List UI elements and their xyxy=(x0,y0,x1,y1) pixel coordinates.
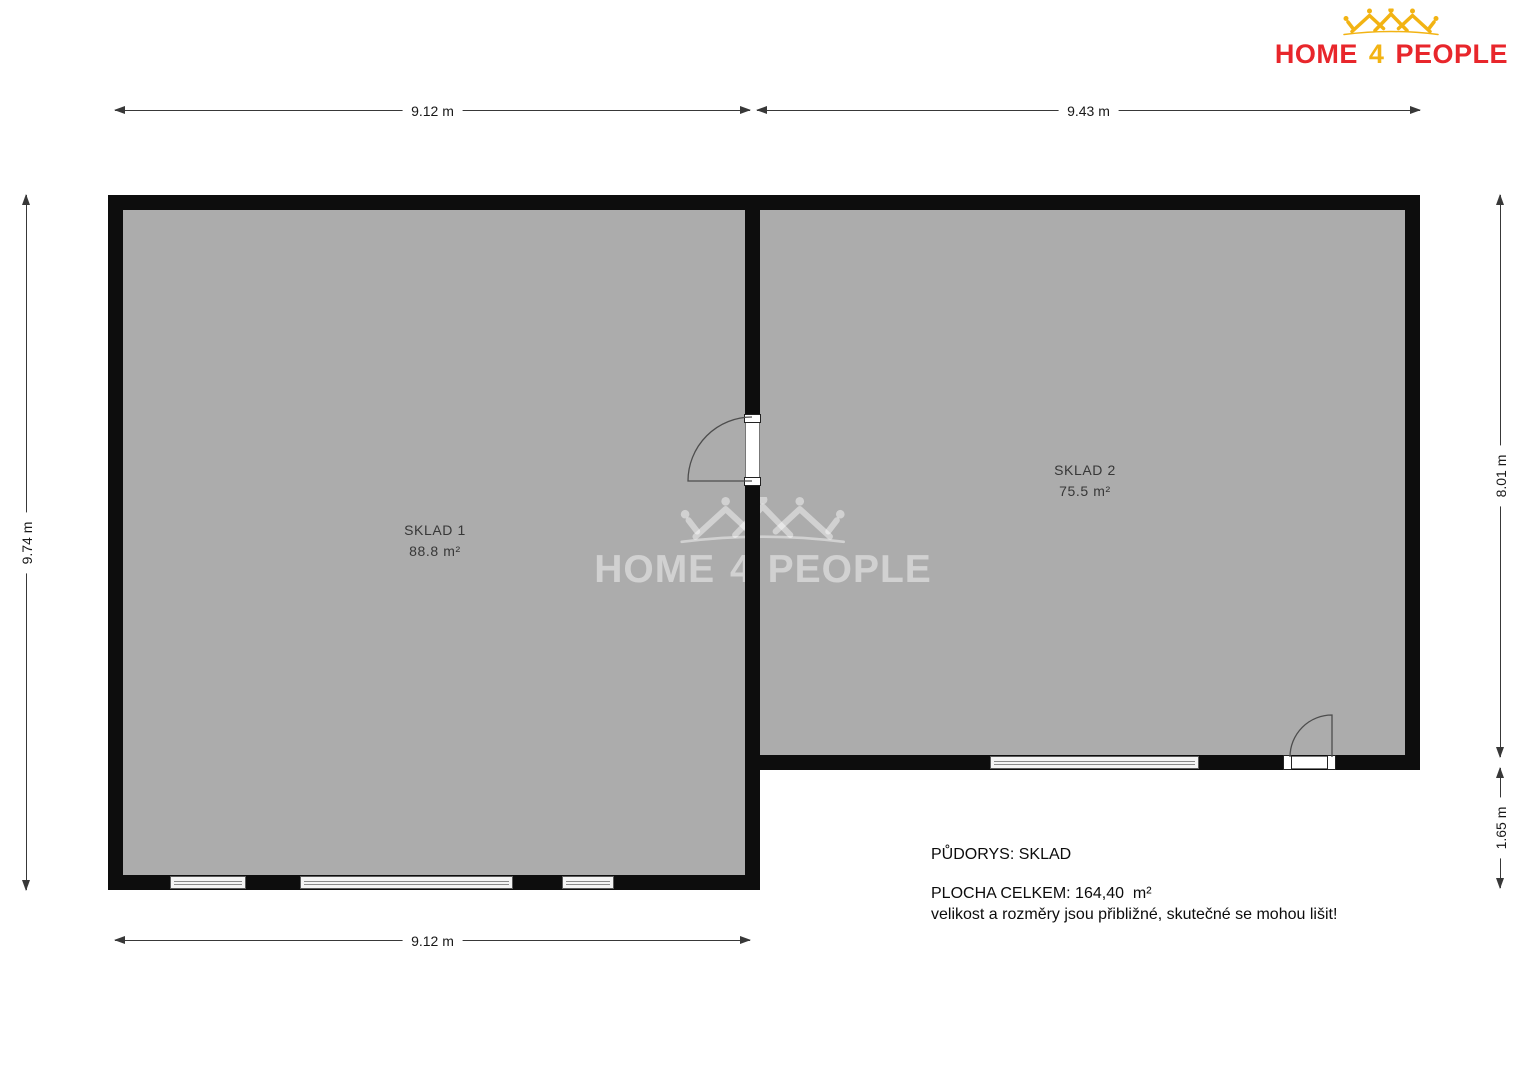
logo-word-people: PEOPLE xyxy=(1395,39,1508,69)
arrow-right-icon xyxy=(740,106,751,114)
arrow-left-icon xyxy=(756,106,767,114)
arrow-left-icon xyxy=(114,106,125,114)
disclaimer: velikost a rozměry jsou přibližné, skute… xyxy=(931,906,1337,924)
dimension-value: 9.12 m xyxy=(402,933,463,949)
arrow-down-icon xyxy=(1496,747,1504,758)
arrow-right-icon xyxy=(740,936,751,944)
room-area: 75.5 m² xyxy=(1005,481,1165,502)
dimension-right-lower: 1.65 m xyxy=(1500,768,1501,888)
logo-wordmark: HOME 4 PEOPLE xyxy=(1275,41,1508,68)
dimension-top-left: 9.12 m xyxy=(115,110,750,111)
dimension-value: 9.43 m xyxy=(1058,103,1119,119)
dimension-left: 9.74 m xyxy=(26,195,27,890)
plan-notes: PŮDORYS: SKLAD PLOCHA CELKEM: 164,40 m² … xyxy=(931,846,1337,924)
arrow-right-icon xyxy=(1410,106,1421,114)
total-area: PLOCHA CELKEM: 164,40 m² xyxy=(931,885,1337,903)
room-label-sklad1: SKLAD 1 88.8 m² xyxy=(355,520,515,562)
room-name: SKLAD 1 xyxy=(355,520,515,541)
home4people-logo: HOME 4 PEOPLE xyxy=(1275,8,1508,68)
houses-people-icon xyxy=(1341,8,1441,38)
dimension-value: 8.01 m xyxy=(1493,446,1509,507)
arrow-up-icon xyxy=(1496,194,1504,205)
logo-word-four: 4 xyxy=(1366,39,1388,69)
room-label-sklad2: SKLAD 2 75.5 m² xyxy=(1005,460,1165,502)
dimension-right-upper: 8.01 m xyxy=(1500,195,1501,757)
door-swing-sklad2 xyxy=(1290,715,1332,757)
plan-title: PŮDORYS: SKLAD xyxy=(931,846,1337,864)
door-swing-middle xyxy=(688,417,752,481)
room-name: SKLAD 2 xyxy=(1005,460,1165,481)
arrow-down-icon xyxy=(22,880,30,891)
floorplan-page: HOME 4 PEOPLE HOME 4 PEOPLE SKLAD 1 88.8… xyxy=(0,0,1526,1080)
arrow-up-icon xyxy=(22,194,30,205)
dimension-top-right: 9.43 m xyxy=(757,110,1420,111)
dimension-value: 1.65 m xyxy=(1493,798,1509,859)
arrow-left-icon xyxy=(114,936,125,944)
dimension-value: 9.74 m xyxy=(19,512,35,573)
dimension-bottom: 9.12 m xyxy=(115,940,750,941)
dimension-value: 9.12 m xyxy=(402,103,463,119)
logo-word-home: HOME xyxy=(1275,39,1358,69)
arrow-up-icon xyxy=(1496,767,1504,778)
arrow-down-icon xyxy=(1496,878,1504,889)
room-area: 88.8 m² xyxy=(355,541,515,562)
